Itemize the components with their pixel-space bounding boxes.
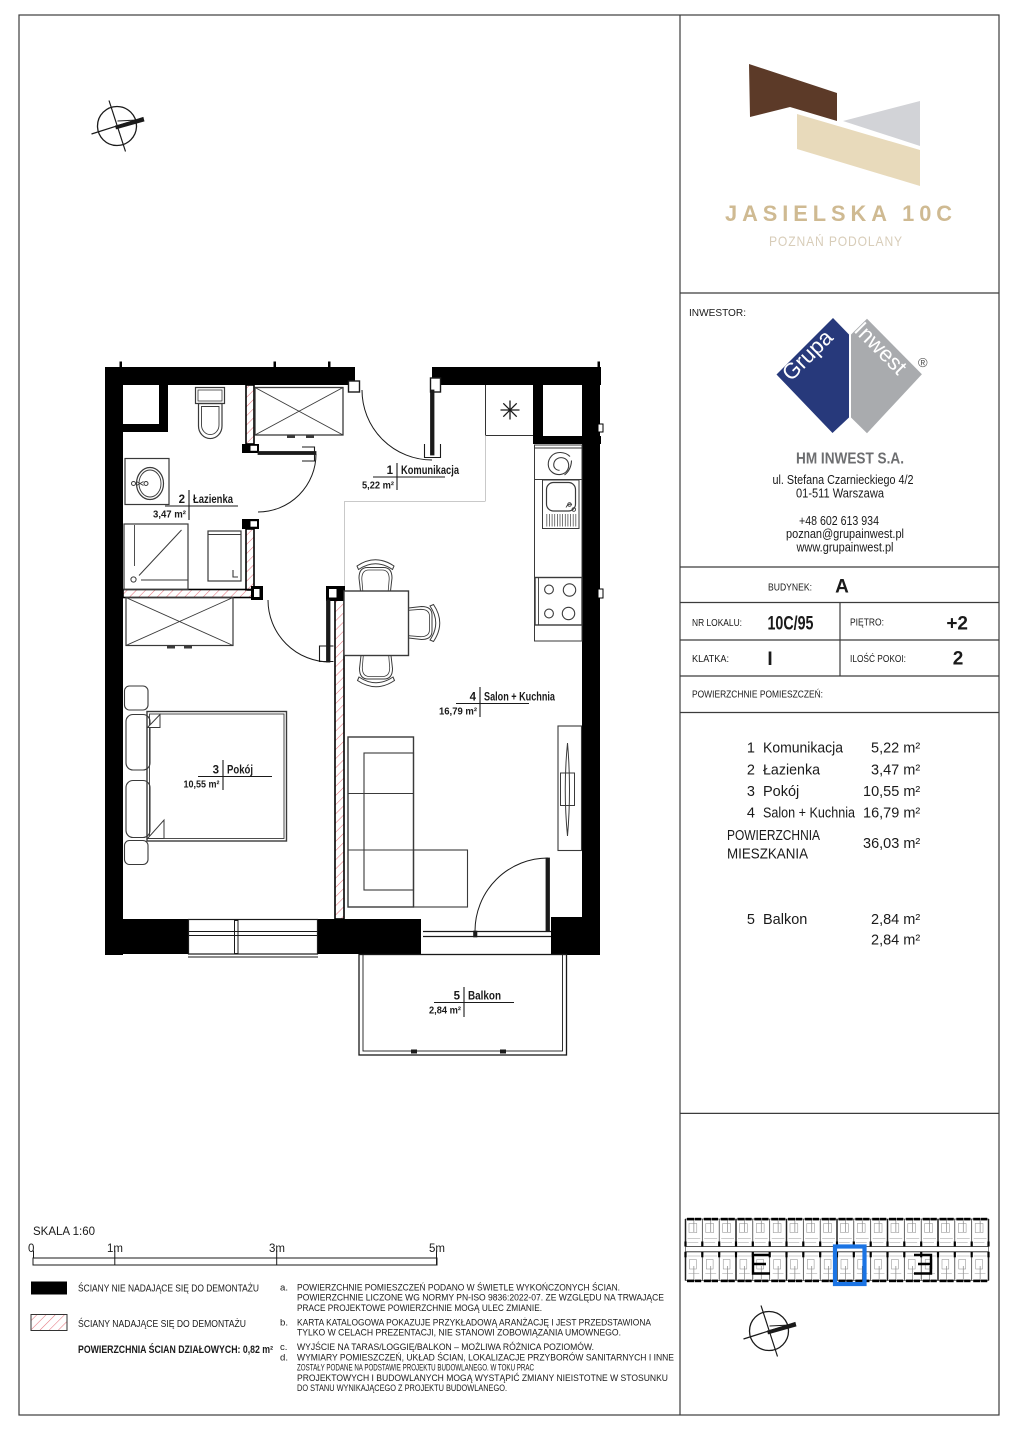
svg-text:b.: b.: [280, 1317, 288, 1328]
svg-text:DO STANU WYNIKAJĄCEGO Z PROJEK: DO STANU WYNIKAJĄCEGO Z PROJEKTU BUDOWLA…: [297, 1383, 507, 1394]
svg-text:1: 1: [387, 465, 394, 477]
svg-text:16,79 m²: 16,79 m²: [863, 806, 920, 822]
svg-text:I: I: [767, 649, 772, 670]
svg-text:3: 3: [747, 784, 755, 800]
svg-text:A: A: [835, 577, 849, 598]
svg-text:WYJŚCIE NA TARAS/LOGGIĘ/BALKON: WYJŚCIE NA TARAS/LOGGIĘ/BALKON – MOŻLIWA…: [297, 1341, 594, 1353]
svg-text:d.: d.: [280, 1352, 288, 1363]
svg-text:SKALA 1:60: SKALA 1:60: [33, 1226, 95, 1238]
svg-text:POWIERZCHNIA ŚCIAN DZIAŁOWYCH:: POWIERZCHNIA ŚCIAN DZIAŁOWYCH: 0,82 m²: [78, 1343, 273, 1356]
svg-text:Łazienka: Łazienka: [763, 763, 821, 779]
svg-text:KLATKA:: KLATKA:: [692, 653, 729, 665]
svg-text:Balkon: Balkon: [468, 991, 501, 1003]
svg-text:PRACE PROJEKTOWE POWIERZCHNIE: PRACE PROJEKTOWE POWIERZCHNIE MOGĄ ULEC …: [297, 1303, 542, 1314]
svg-text:Pokój: Pokój: [763, 784, 799, 800]
svg-text:NR LOKALU:: NR LOKALU:: [692, 617, 742, 629]
svg-text:4: 4: [470, 692, 477, 704]
svg-text:Balkon: Balkon: [763, 912, 807, 928]
svg-text:MIESZKANIA: MIESZKANIA: [727, 847, 808, 863]
svg-text:3,47 m²: 3,47 m²: [153, 510, 187, 521]
svg-text:POZNAŃ PODOLANY: POZNAŃ PODOLANY: [769, 233, 903, 249]
svg-text:5: 5: [747, 912, 755, 928]
svg-text:poznan@grupainwest.pl: poznan@grupainwest.pl: [786, 527, 904, 541]
svg-text:JASIELSKA 10C: JASIELSKA 10C: [725, 201, 957, 226]
svg-text:2,84 m²: 2,84 m²: [871, 912, 920, 928]
svg-text:16,79 m²: 16,79 m²: [439, 707, 478, 718]
svg-text:POWIERZCHNIA: POWIERZCHNIA: [727, 828, 820, 844]
svg-text:www.grupainwest.pl: www.grupainwest.pl: [796, 541, 894, 555]
svg-text:WYMIARY POMIESZCZEŃ, UKŁAD ŚCI: WYMIARY POMIESZCZEŃ, UKŁAD ŚCIAN, LOKALI…: [297, 1351, 674, 1363]
svg-text:ŚCIANY NADAJĄCE SIĘ DO DEMONTA: ŚCIANY NADAJĄCE SIĘ DO DEMONTAŻU: [78, 1317, 246, 1330]
svg-text:2: 2: [747, 763, 755, 779]
svg-text:ŚCIANY NIE NADAJĄCE SIĘ DO DEM: ŚCIANY NIE NADAJĄCE SIĘ DO DEMONTAŻU: [78, 1282, 259, 1295]
svg-text:INWESTOR:: INWESTOR:: [689, 307, 746, 319]
svg-text:Łazienka: Łazienka: [193, 494, 233, 506]
svg-text:5,22 m²: 5,22 m²: [871, 741, 920, 757]
svg-text:+2: +2: [946, 614, 968, 635]
svg-text:Salon + Kuchnia: Salon + Kuchnia: [484, 692, 555, 704]
svg-text:POWIERZCHNIE POMIESZCZEŃ PODAN: POWIERZCHNIE POMIESZCZEŃ PODANO W ŚWIETL…: [297, 1282, 620, 1294]
svg-text:®: ®: [918, 355, 928, 370]
svg-text:BUDYNEK:: BUDYNEK:: [768, 582, 812, 594]
svg-text:1: 1: [747, 741, 755, 757]
svg-text:ul. Stefana Czarnieckiego 4/2: ul. Stefana Czarnieckiego 4/2: [773, 473, 914, 487]
svg-text:5: 5: [454, 991, 461, 1003]
svg-text:ILOŚĆ POKOI:: ILOŚĆ POKOI:: [850, 652, 906, 665]
svg-text:10,55 m²: 10,55 m²: [863, 784, 920, 800]
svg-text:PIĘTRO:: PIĘTRO:: [850, 617, 884, 629]
svg-text:2: 2: [179, 494, 185, 506]
svg-text:2,84 m²: 2,84 m²: [871, 933, 920, 949]
svg-text:2,84 m²: 2,84 m²: [429, 1006, 462, 1017]
svg-text:5,22 m²: 5,22 m²: [362, 481, 395, 492]
svg-text:36,03 m²: 36,03 m²: [863, 836, 920, 852]
svg-text:2: 2: [953, 649, 964, 670]
svg-text:Komunikacja: Komunikacja: [401, 465, 459, 477]
svg-text:Pokój: Pokój: [227, 765, 253, 777]
svg-text:POWIERZCHNIE POMIESZCZEŃ:: POWIERZCHNIE POMIESZCZEŃ:: [692, 688, 823, 701]
svg-text:Komunikacja: Komunikacja: [763, 741, 844, 757]
svg-text:01-511 Warszawa: 01-511 Warszawa: [796, 487, 884, 501]
svg-text:10C/95: 10C/95: [768, 614, 814, 635]
svg-text:HM INWEST S.A.: HM INWEST S.A.: [796, 451, 904, 468]
svg-text:3,47 m²: 3,47 m²: [871, 763, 920, 779]
svg-text:4: 4: [747, 806, 755, 822]
svg-text:10,55 m²: 10,55 m²: [184, 780, 221, 791]
svg-text:a.: a.: [280, 1283, 288, 1294]
svg-text:3: 3: [213, 765, 219, 777]
svg-text:+48 602 613 934: +48 602 613 934: [799, 514, 879, 528]
svg-text:TYLKO W CELACH PREZENTACJI, NI: TYLKO W CELACH PREZENTACJI, NIE STANOWI …: [297, 1328, 621, 1339]
svg-text:Salon + Kuchnia: Salon + Kuchnia: [763, 806, 856, 822]
